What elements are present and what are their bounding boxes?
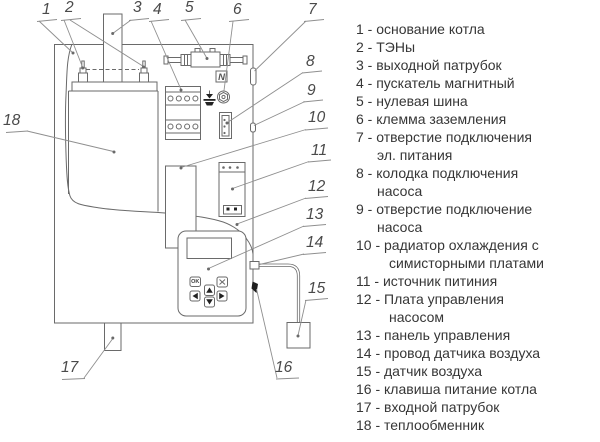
legend-item-18: 18 - теплообменник [356,416,598,434]
legend-item-17: 17 - входной патрубок [356,398,598,416]
callout-number-2: 2 [65,0,74,16]
callout-number-10: 10 [308,110,325,126]
wire-grommet [250,262,259,270]
legend-item-14: 14 - провод датчика воздуха [356,344,598,362]
legend-item-9-continuation: насоса [356,218,598,236]
legend-item-1: 1 - основание котла [356,20,598,38]
magnetic-starter [166,87,201,140]
callout-number-4: 4 [153,2,162,18]
callout-number-11: 11 [311,143,327,159]
callout-number-14: 14 [306,235,323,251]
legend-item-10: 10 - радиатор охлаждения с [356,236,598,254]
legend-item-15: 15 - датчик воздуха [356,362,598,380]
legend-item-7-continuation: эл. питания [356,146,598,164]
boiler-parts-diagram-page: 123456789101112131415161718 N OK 1 - осн… [0,0,600,442]
control-panel [178,231,246,316]
callout-number-8: 8 [306,54,315,70]
legend-item-11: 11 - источник питиния [356,272,598,290]
callout-number-5: 5 [185,0,194,16]
outlet-pipe [104,14,123,82]
callout-number-15: 15 [308,281,325,297]
legend-item-2: 2 - ТЭНы [356,38,598,56]
callout-number-17: 17 [61,360,78,376]
legend-item-12-continuation: насосом [356,308,598,326]
legend-item-10-continuation: симисторными платами [356,254,598,272]
callout-number-13: 13 [306,207,323,223]
legend-item-8: 8 - колодка подключения [356,164,598,182]
pump-control-board [224,206,242,215]
legend-item-7: 7 - отверстие подключения [356,128,598,146]
legend: 1 - основание котла2 - ТЭНы3 - выходной … [356,20,598,434]
legend-item-8-continuation: насоса [356,182,598,200]
callout-number-3: 3 [133,0,142,16]
pump-terminal-block [220,113,232,139]
legend-item-4: 4 - пускатель магнитный [356,74,598,92]
neutral-label: N [216,72,227,83]
pump-cable-hole [251,123,256,132]
callout-number-6: 6 [233,2,242,18]
ok-button-label: OK [190,278,201,287]
callout-number-18: 18 [3,113,20,129]
ground-terminal-bolt [218,91,230,103]
callout-number-16: 16 [275,360,292,376]
legend-item-6: 6 - клемма заземления [356,110,598,128]
callout-number-12: 12 [308,179,325,195]
legend-item-16: 16 - клавиша питание котла [356,380,598,398]
callout-number-1: 1 [42,2,51,18]
legend-item-12: 12 - Плата управления [356,290,598,308]
legend-item-13: 13 - панель управления [356,326,598,344]
legend-item-3: 3 - выходной патрубок [356,56,598,74]
legend-item-9: 9 - отверстие подключение [356,200,598,218]
legend-item-5: 5 - нулевая шина [356,92,598,110]
callout-number-7: 7 [308,2,317,18]
callout-number-9: 9 [307,83,316,99]
